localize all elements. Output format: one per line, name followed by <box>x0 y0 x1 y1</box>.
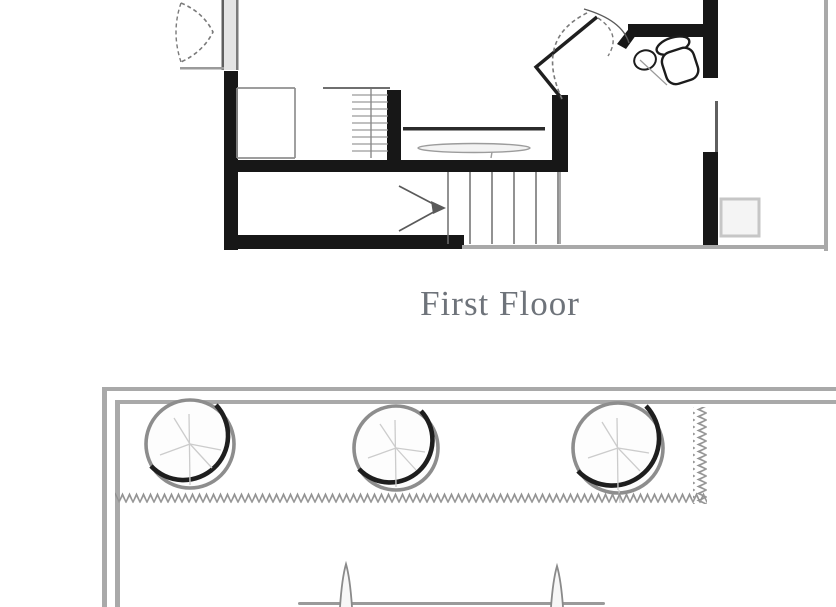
interior-wall-horizontal <box>224 160 560 172</box>
stair-arrow-head-icon <box>431 201 446 214</box>
bifold-door-swing-arc <box>176 3 181 62</box>
floor-plan-page: First Floor <box>0 0 836 607</box>
right-wall-upper <box>703 0 718 78</box>
plant-symbol <box>340 564 352 607</box>
bathroom-wall <box>628 24 704 37</box>
left-door-jamb-line <box>236 0 239 70</box>
tree-symbol <box>573 403 663 503</box>
tree-symbol <box>354 406 438 490</box>
first-floor-plan <box>176 0 828 251</box>
bottom-boundary-line <box>462 245 828 249</box>
door-swing-arc <box>553 12 589 99</box>
bathroom-sink <box>632 48 659 73</box>
hatched-border-right <box>693 407 707 504</box>
counter-drain-tick <box>491 152 492 158</box>
niche-right-wall <box>552 95 568 172</box>
outer-boundary-left <box>102 387 107 607</box>
counter-front-line <box>403 127 545 131</box>
window-line <box>715 101 718 152</box>
tree-symbol <box>146 400 234 488</box>
left-door-jamb-line <box>222 0 225 70</box>
porch-square <box>721 199 759 236</box>
right-wall-lower <box>703 152 718 247</box>
bottom-exterior-wall <box>224 235 464 249</box>
shelves <box>323 88 390 158</box>
bifold-door-swing-arc <box>181 3 213 62</box>
door-threshold-line <box>180 67 224 70</box>
door-swing-arc <box>598 18 613 56</box>
site-plan <box>102 387 836 607</box>
left-door-opening <box>224 0 236 70</box>
inner-boundary-top <box>115 400 836 404</box>
hatched-border-bottom <box>115 492 707 504</box>
plant-symbol <box>551 566 563 607</box>
double-door-leaves <box>536 17 597 99</box>
first-floor-label: First Floor <box>360 284 640 324</box>
outer-boundary-top <box>102 387 836 391</box>
bathroom-fixtures <box>631 33 701 95</box>
right-boundary-line <box>824 0 828 251</box>
counter-sink-basin <box>418 144 530 153</box>
interior-wall-vertical <box>387 90 401 161</box>
staircase-treads <box>448 172 558 244</box>
closet <box>237 88 295 158</box>
